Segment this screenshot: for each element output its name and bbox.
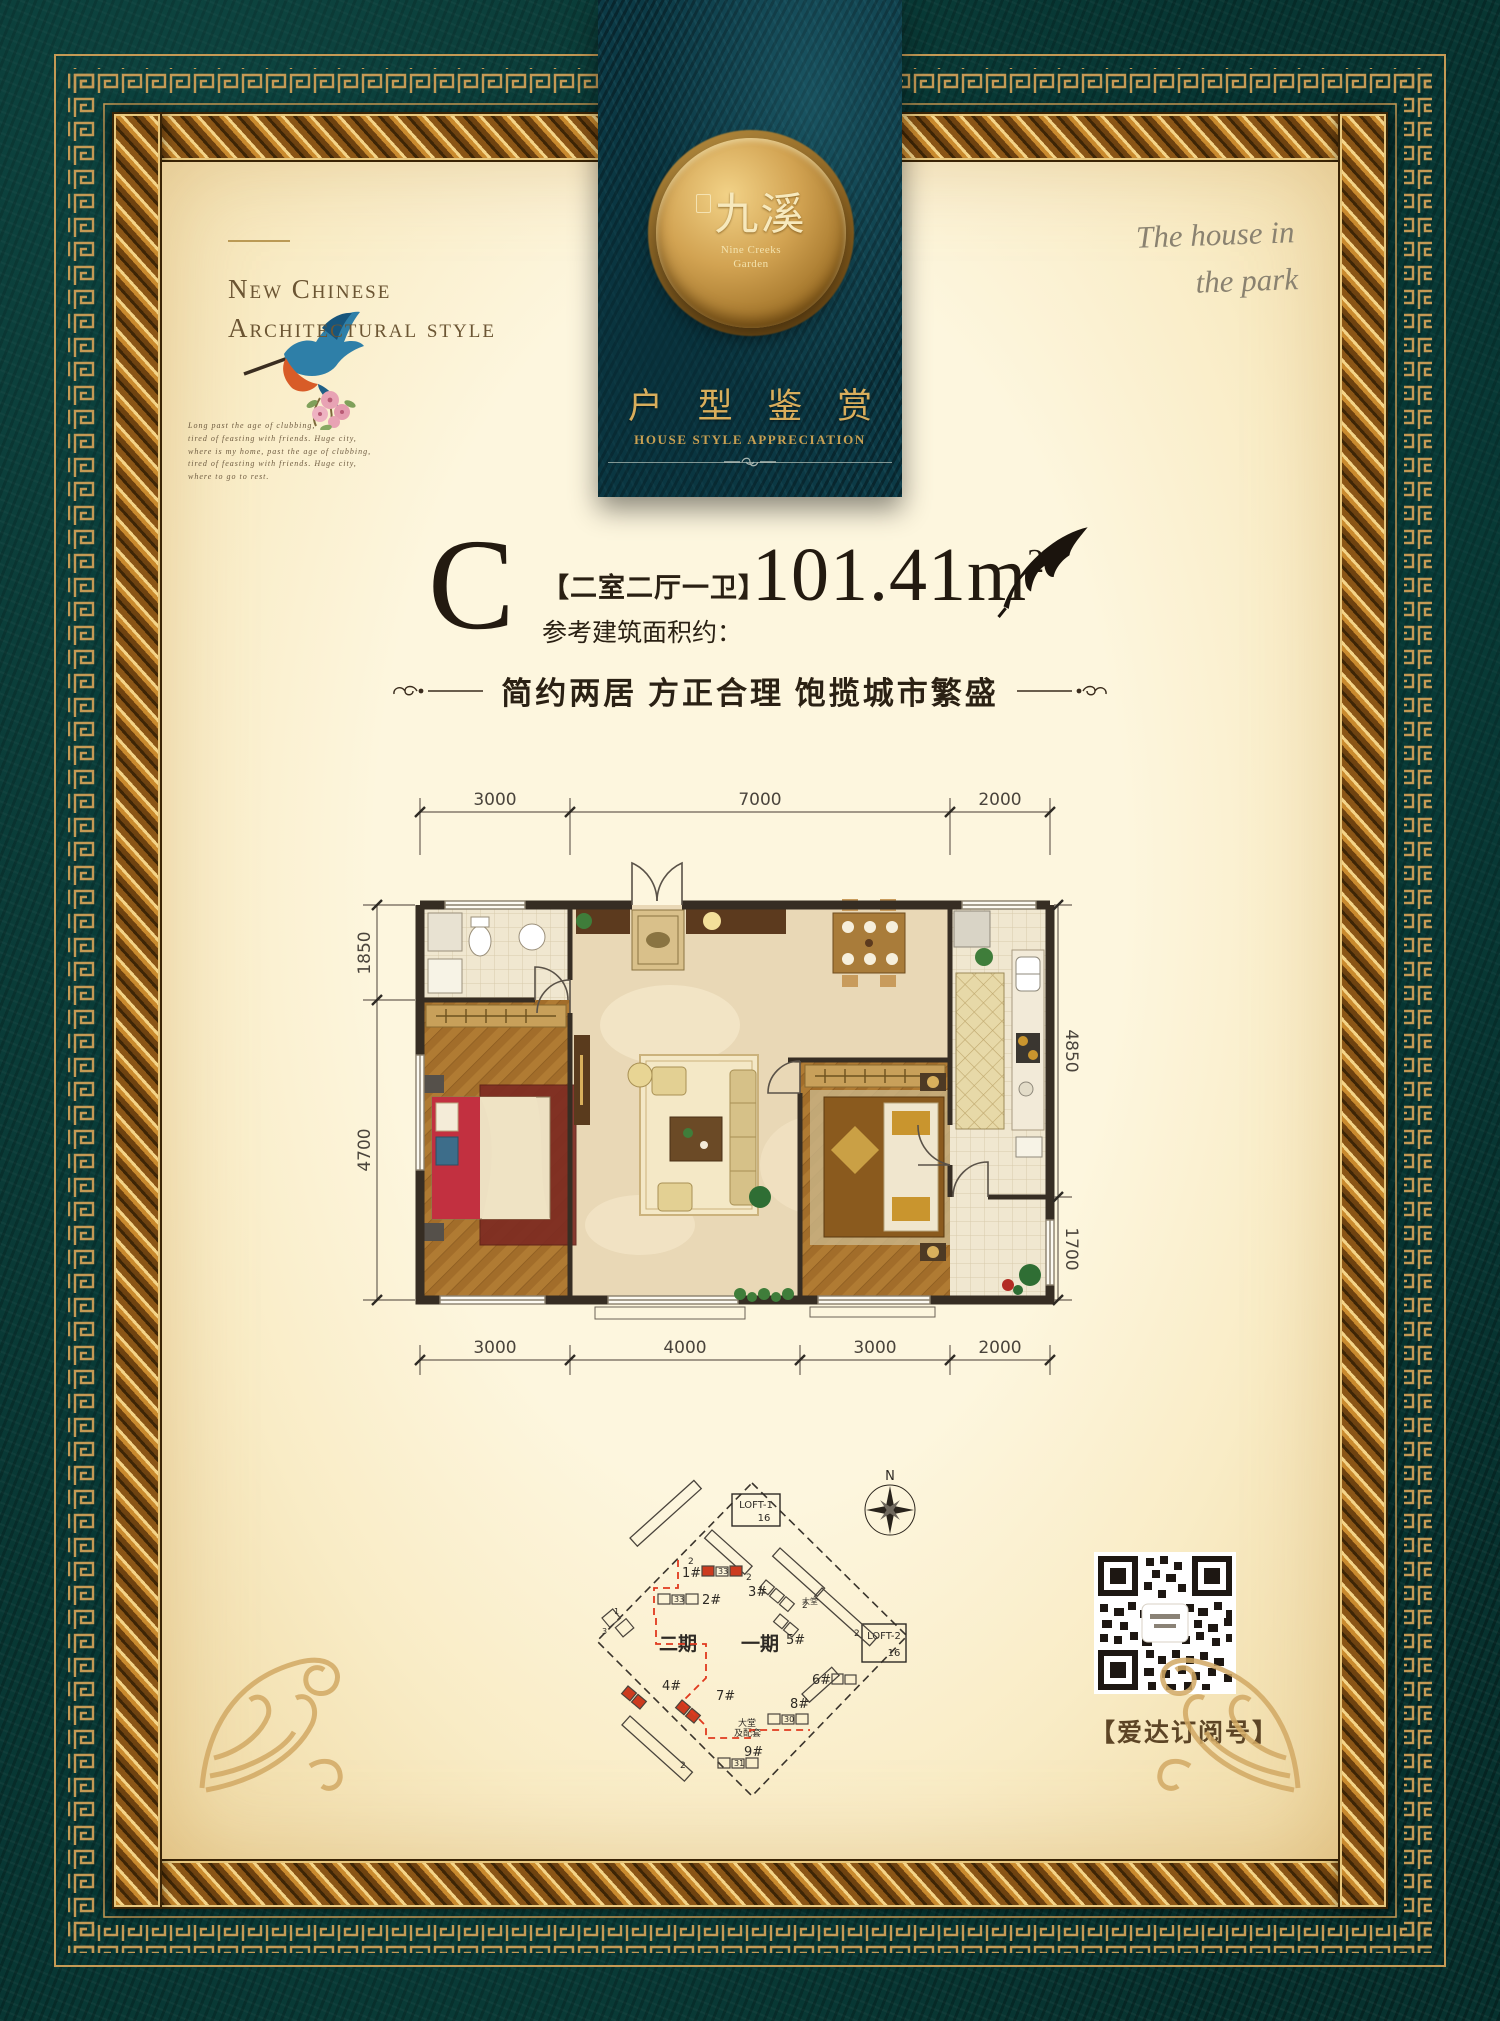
dim-bottom-4: 2000 xyxy=(978,1338,1021,1358)
tagline-text: 简约两居 方正合理 饱揽城市繁盛 xyxy=(501,668,999,713)
building-4: 4# xyxy=(662,1679,681,1694)
svg-text:2: 2 xyxy=(680,1761,686,1771)
svg-text:33: 33 xyxy=(718,1567,728,1576)
building-9: 9# xyxy=(744,1745,763,1760)
unit-layout-block: 【二室二厅一卫】 参考建筑面积约： xyxy=(542,566,766,649)
corner-flourish-left xyxy=(190,1640,350,1800)
svg-text:1: 1 xyxy=(614,1607,619,1616)
heading-line2: Architectural style xyxy=(228,309,496,348)
dim-right-1: 4850 xyxy=(1061,1029,1081,1072)
decorative-script-text: Long past the age of clubbing, tired of … xyxy=(188,420,438,484)
bird-beak xyxy=(244,358,288,374)
ornate-frame-right xyxy=(1338,112,1388,1909)
building-2: 2# xyxy=(702,1593,721,1608)
poster-page: New Chinese Architectural style Long pas… xyxy=(0,0,1500,2021)
svg-text:LOFT-1: LOFT-1 xyxy=(739,1500,773,1511)
dim-left-2: 4700 xyxy=(355,1128,375,1171)
unit-letter: C xyxy=(428,520,515,650)
building-3: 3# xyxy=(748,1585,767,1600)
svg-text:33: 33 xyxy=(674,1595,684,1604)
svg-text:30: 30 xyxy=(784,1715,794,1724)
building-7: 7# xyxy=(716,1689,735,1704)
dim-bottom-2: 4000 xyxy=(663,1338,706,1358)
building-5: 5# xyxy=(786,1633,805,1648)
building-6: 6# xyxy=(812,1673,831,1688)
svg-text:及配套: 及配套 xyxy=(734,1727,761,1738)
phase1-label: 一期 xyxy=(741,1633,779,1655)
heading-line1: New Chinese xyxy=(228,270,496,309)
unit-layout: 【二室二厅一卫】 xyxy=(542,566,766,605)
feather-icon xyxy=(988,523,1100,619)
seal-stamp-icon xyxy=(696,194,711,213)
flourish-right-icon xyxy=(1015,682,1110,700)
dim-top-1: 3000 xyxy=(473,790,516,810)
floor-plan: 3000 7000 2000 3000 4000 3000 2000 1850 … xyxy=(340,745,1085,1425)
svg-text:16: 16 xyxy=(758,1513,771,1524)
dim-right-2: 1700 xyxy=(1061,1227,1081,1270)
banner-ornament xyxy=(720,455,780,469)
park-script-line2: the park xyxy=(1136,254,1357,308)
dim-left-1: 1850 xyxy=(355,931,375,974)
dim-top-3: 2000 xyxy=(978,790,1021,810)
unit-area-label: 参考建筑面积约： xyxy=(542,613,766,649)
svg-text:3: 3 xyxy=(602,1627,607,1636)
dim-bottom-3: 3000 xyxy=(853,1338,896,1358)
bar-count-labels: 2 2 2 2 2 xyxy=(680,1557,860,1771)
lobby-small-label: 大堂 xyxy=(802,1596,818,1606)
lobby-note: 大堂 及配套 xyxy=(734,1717,761,1738)
corner-flourish-right xyxy=(1150,1640,1310,1800)
loft1-box: LOFT-1 16 xyxy=(732,1494,780,1526)
banner-title-cn: 户 型 鉴 赏 xyxy=(598,378,902,429)
flourish-left-icon xyxy=(390,682,485,700)
banner-title-en: HOUSE STYLE APPRECIATION xyxy=(598,432,902,448)
compass-north: N xyxy=(885,1469,895,1484)
dim-top-2: 7000 xyxy=(738,790,781,810)
style-heading-block: New Chinese Architectural style xyxy=(228,240,496,348)
ornate-frame-bottom xyxy=(112,1859,1388,1909)
seal-english-name: Nine Creeks Garden xyxy=(721,244,781,272)
tagline-row: 简约两居 方正合理 饱揽城市繁盛 xyxy=(0,668,1500,713)
site-plan: N LOFT-1 16 LOFT-2 16 2 2 2 2 2 xyxy=(450,1468,1010,1838)
seal-chinese-name: 九溪 xyxy=(696,194,807,236)
svg-text:大堂: 大堂 xyxy=(738,1717,756,1728)
heading-rule xyxy=(228,240,290,242)
park-script-block: The house in the park xyxy=(1074,207,1357,310)
building-1: 1# xyxy=(682,1566,701,1581)
brand-seal: 九溪 Nine Creeks Garden xyxy=(656,138,846,328)
svg-text:2: 2 xyxy=(854,1629,860,1639)
ornate-frame-left xyxy=(112,112,162,1909)
svg-text:31: 31 xyxy=(734,1759,744,1768)
dim-bottom-1: 3000 xyxy=(473,1338,516,1358)
title-banner: 九溪 Nine Creeks Garden 户 型 鉴 赏 HOUSE STYL… xyxy=(598,0,902,497)
building-8: 8# xyxy=(790,1697,809,1712)
bedroom2-furniture xyxy=(805,1065,950,1261)
svg-text:2: 2 xyxy=(746,1573,752,1583)
svg-text:16: 16 xyxy=(888,1648,901,1659)
compass-icon: N xyxy=(865,1469,915,1535)
